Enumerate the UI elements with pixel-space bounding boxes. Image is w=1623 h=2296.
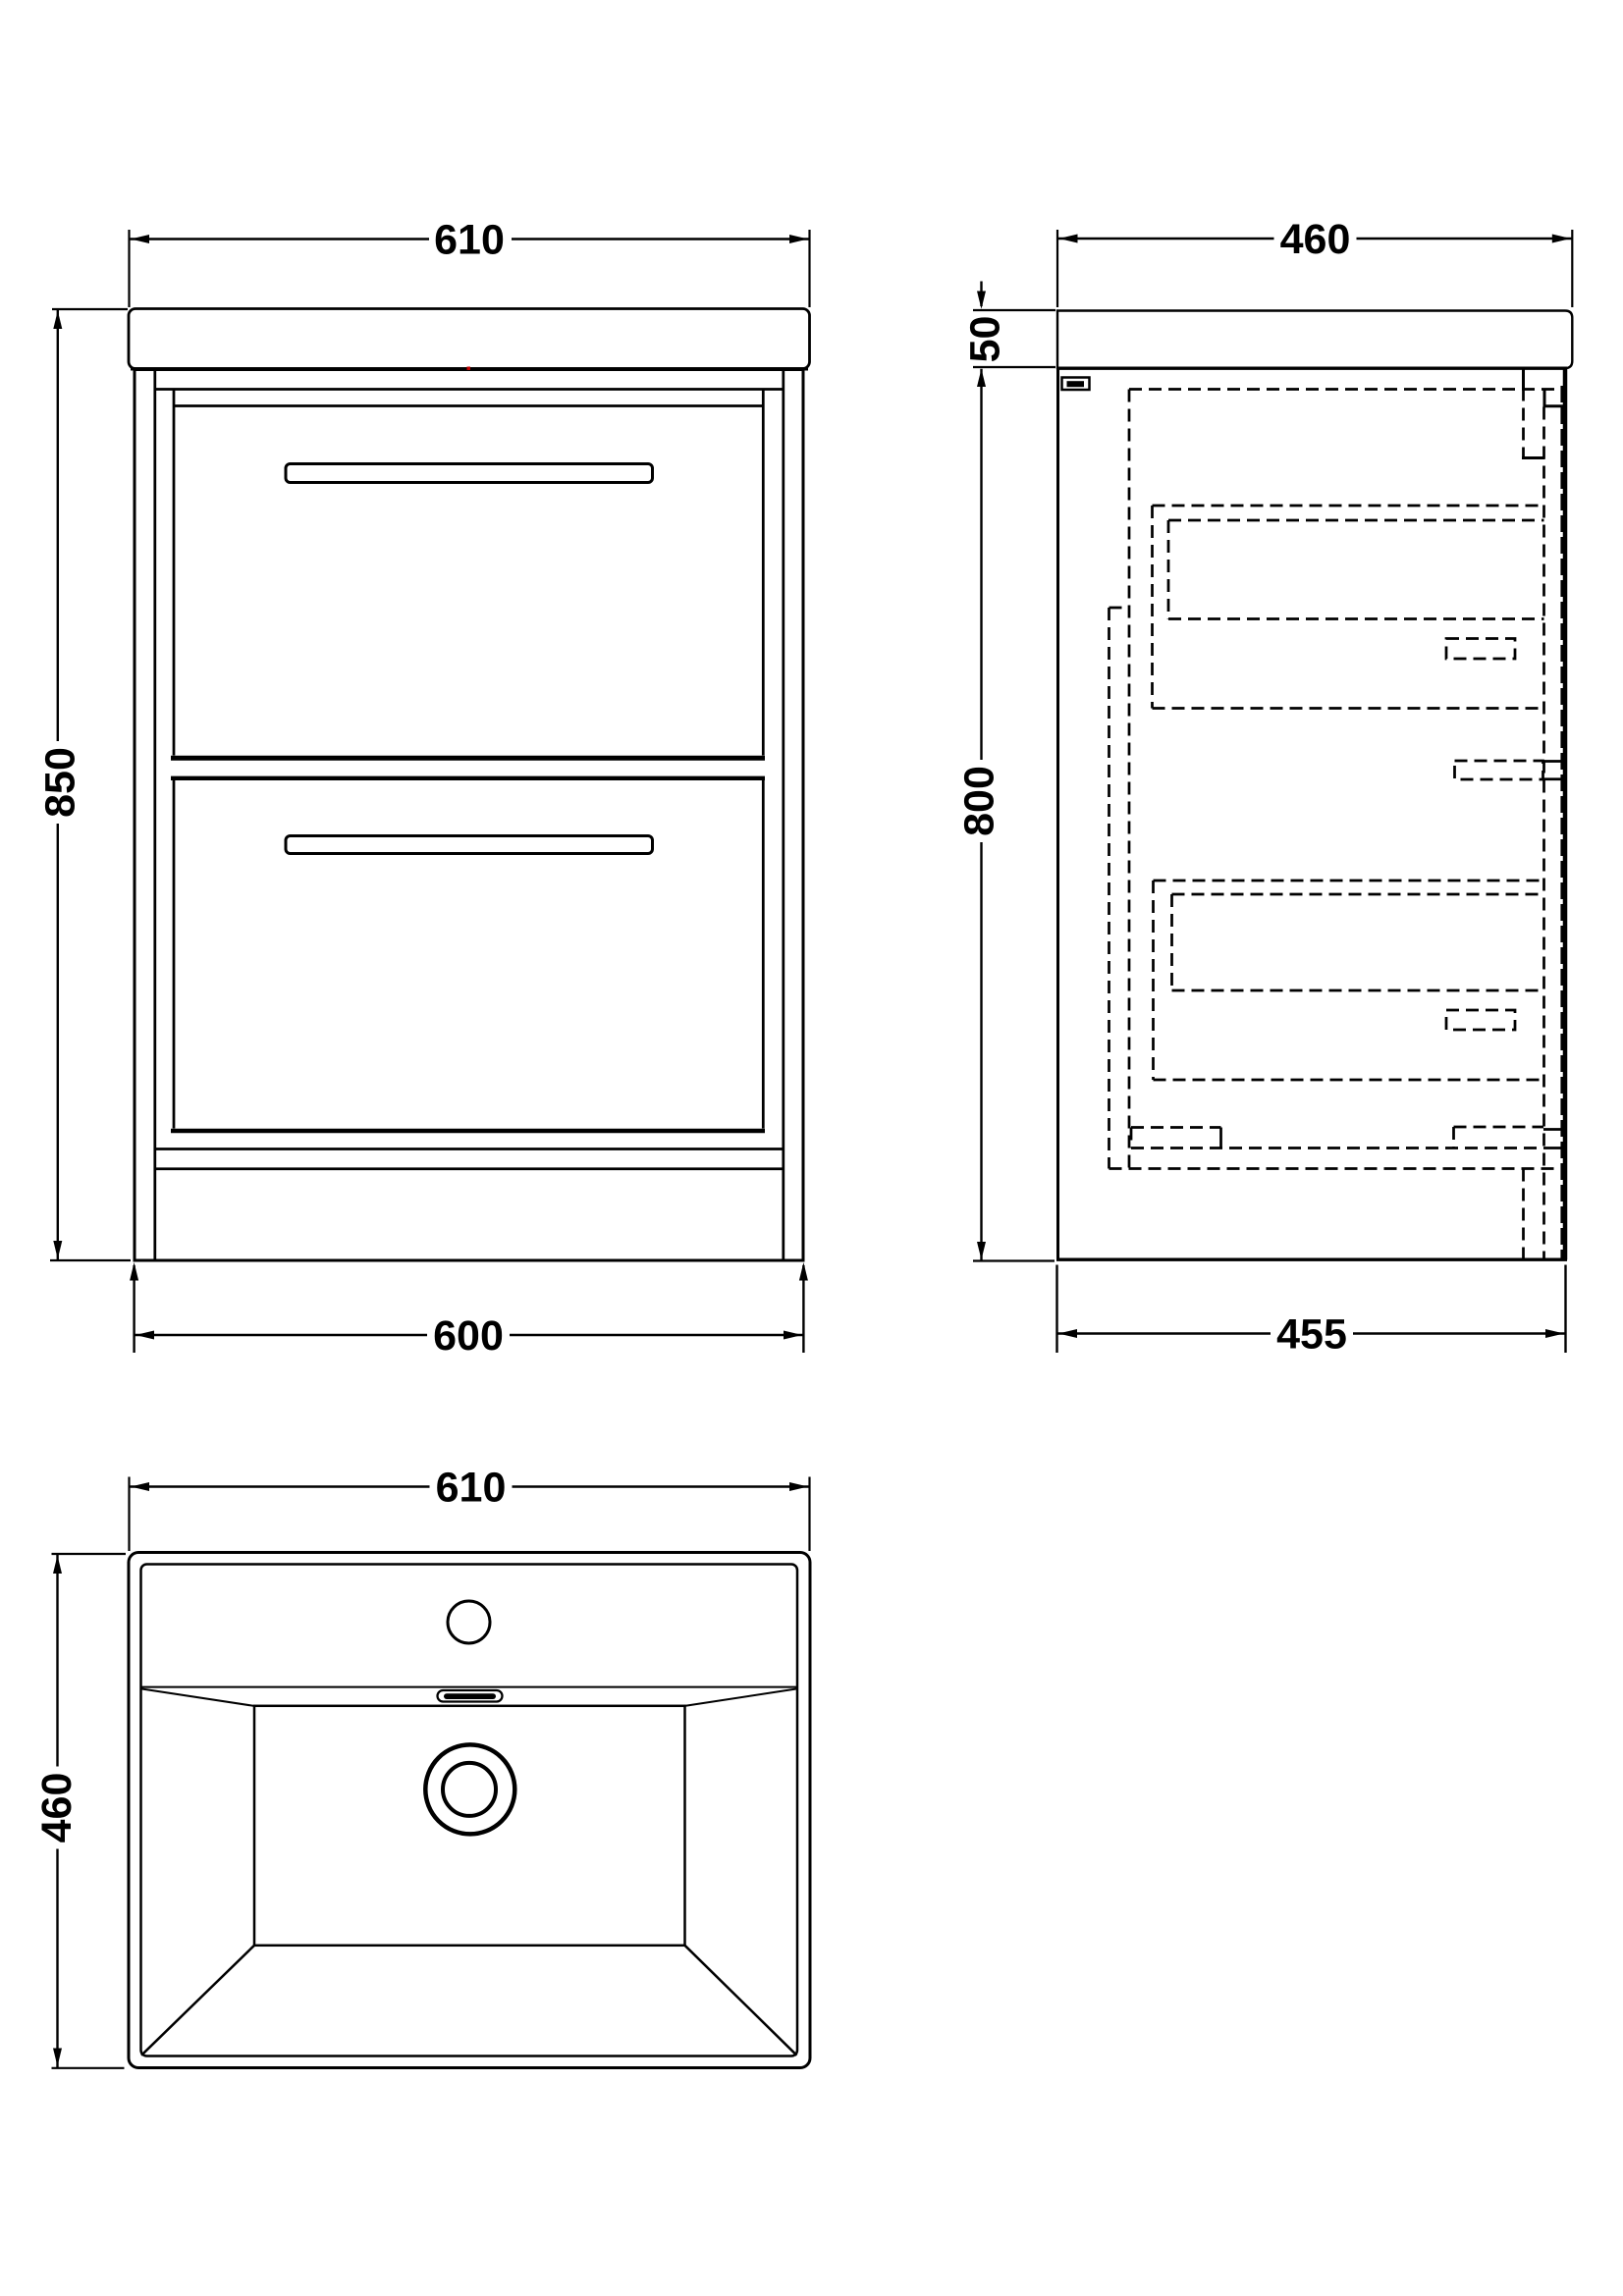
svg-text:460: 460 [1280, 216, 1351, 263]
svg-text:600: 600 [433, 1312, 504, 1360]
svg-text:50: 50 [962, 316, 1009, 363]
svg-text:610: 610 [436, 1465, 507, 1512]
svg-text:800: 800 [956, 766, 1003, 836]
svg-text:850: 850 [37, 747, 84, 818]
svg-text:610: 610 [434, 217, 505, 264]
svg-text:460: 460 [33, 1773, 81, 1843]
svg-text:455: 455 [1276, 1311, 1347, 1359]
